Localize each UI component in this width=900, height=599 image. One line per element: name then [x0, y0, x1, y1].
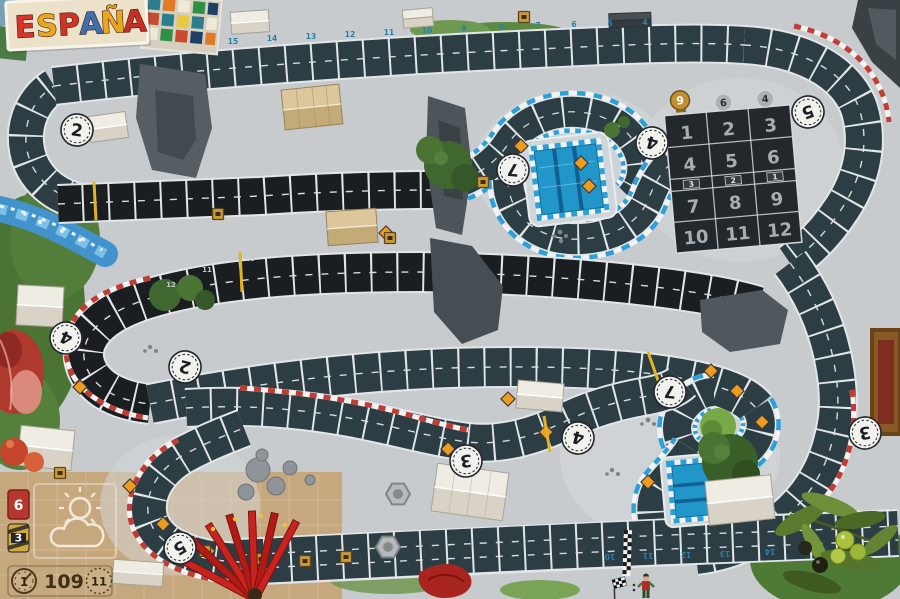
tent	[281, 84, 343, 130]
space-number: 8	[332, 245, 337, 253]
hex-nut	[386, 484, 410, 505]
track-length: 109	[44, 571, 84, 593]
space-number: 14	[267, 34, 277, 43]
grid-badge-1: 6	[720, 98, 728, 110]
press-circle: 11	[87, 569, 112, 594]
space-number: 7	[371, 242, 376, 250]
board-stage: 1 2 3 4 5 6 7 8 9 10 11 12 3 2 1 9 6	[0, 0, 900, 599]
svg-text:7: 7	[506, 159, 520, 180]
space-number: 9	[293, 249, 298, 257]
framed-picture	[872, 330, 900, 434]
space-number: 15	[228, 37, 238, 46]
tent	[16, 285, 64, 327]
svg-text:11: 11	[91, 575, 107, 589]
title-letter: P	[57, 7, 81, 43]
grid-cell-3: 3	[763, 115, 777, 137]
trophy-value: 9	[676, 94, 685, 108]
space-number: 8	[498, 23, 503, 32]
space-number: 10	[245, 255, 255, 263]
grid-lane-marker-3: 1	[772, 172, 778, 181]
svg-text:1: 1	[20, 575, 28, 589]
game-board: 1 2 3 4 5 6 7 8 9 10 11 12 3 2 1 9 6	[0, 0, 900, 599]
tent	[87, 111, 128, 142]
svg-text:6: 6	[14, 498, 24, 514]
space-number: 14	[765, 547, 775, 556]
grid-cell-8: 8	[728, 192, 742, 214]
grid-lane-marker-1: 3	[688, 179, 694, 188]
space-number: 4	[642, 18, 647, 27]
grid-cell-2: 2	[722, 119, 736, 141]
grid-cell-10: 10	[683, 226, 710, 249]
heat-card: 6	[8, 490, 29, 519]
space-number: 10	[605, 552, 615, 561]
svg-text:7: 7	[663, 381, 677, 402]
grid-lane-marker-2: 2	[730, 176, 736, 185]
grid-cell-9: 9	[770, 189, 784, 211]
tent	[230, 10, 269, 35]
space-number: 13	[720, 549, 730, 558]
grid-cell-12: 12	[766, 219, 793, 242]
tent	[326, 208, 378, 245]
grid-cell-7: 7	[686, 196, 700, 218]
space-number: 9	[461, 24, 466, 33]
space-number: 12	[166, 281, 176, 289]
title-letter: E	[14, 10, 36, 46]
svg-text:3: 3	[15, 532, 23, 545]
space-number: 13	[306, 32, 316, 41]
grid-cell-1: 1	[680, 122, 694, 144]
space-number: 11	[202, 266, 212, 274]
grid-cell-4: 4	[683, 154, 697, 176]
space-number: 5	[607, 19, 612, 28]
title-letter: A	[122, 4, 148, 40]
title-letter: S	[35, 9, 58, 45]
track-second-straight	[58, 190, 434, 204]
space-number: 11	[643, 551, 653, 560]
grid-cell-5: 5	[724, 151, 738, 173]
stress-card: 3	[8, 524, 29, 552]
tent	[112, 559, 164, 586]
title-logo: E S P A Ñ A	[6, 0, 151, 53]
space-number: 11	[384, 28, 394, 37]
race-info: 1 109 11	[8, 566, 112, 596]
hex-nut	[376, 537, 400, 558]
space-number: 12	[345, 30, 355, 39]
tent	[516, 380, 564, 412]
grid-cell-11: 11	[725, 223, 752, 246]
pool-1	[520, 131, 618, 227]
svg-text:3: 3	[459, 450, 473, 471]
mosaic-tile	[141, 0, 221, 54]
space-number: 10	[422, 26, 432, 35]
space-number: 12	[681, 550, 691, 559]
grid-badge-2: 4	[761, 94, 769, 106]
gauge-icon: 1	[12, 569, 36, 593]
space-number: 7	[535, 21, 540, 30]
tent	[705, 475, 775, 526]
space-number: 6	[571, 20, 576, 29]
grid-cell-6: 6	[766, 147, 780, 169]
